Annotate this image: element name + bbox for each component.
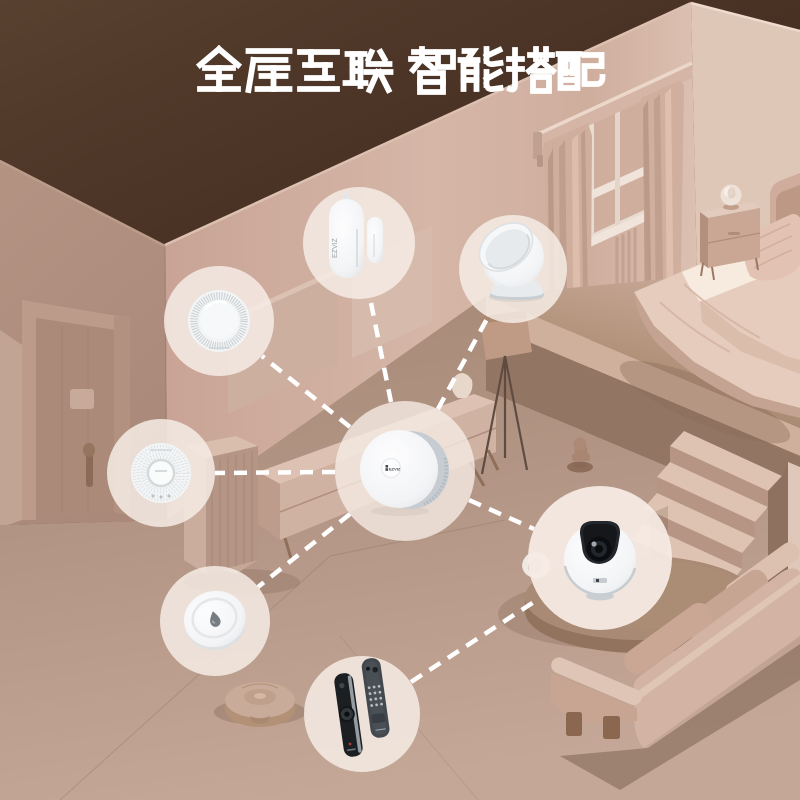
svg-text:EZVIZ: EZVIZ	[389, 467, 401, 472]
svg-text:EZVIZ: EZVIZ	[332, 237, 339, 258]
